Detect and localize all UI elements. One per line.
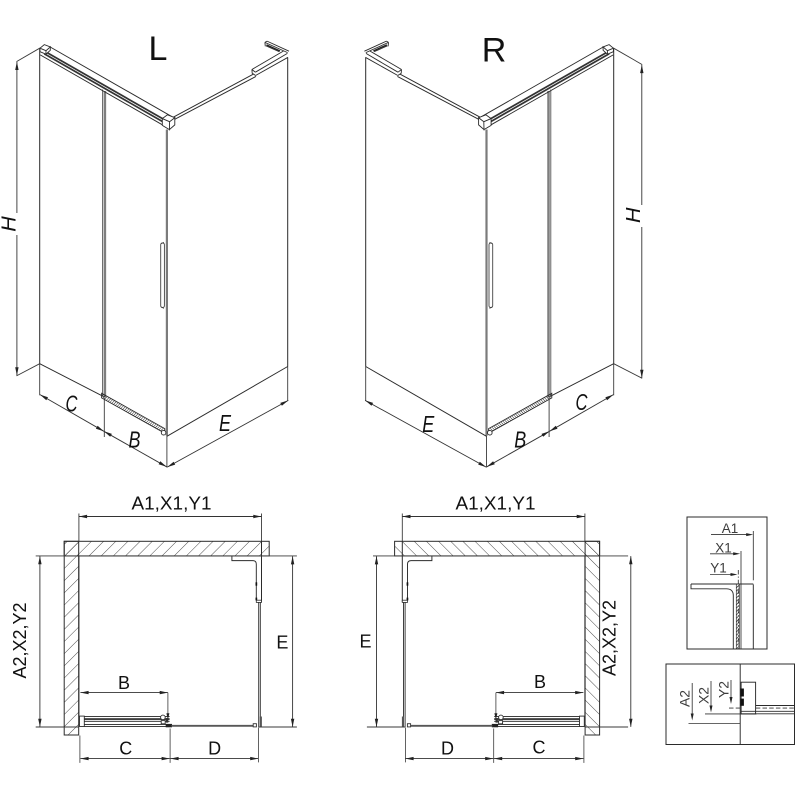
svg-text:B: B [534,672,546,692]
svg-text:A1: A1 [722,520,739,536]
svg-text:C: C [576,389,588,415]
svg-text:E: E [276,633,288,653]
svg-text:C: C [533,738,546,758]
svg-text:C: C [119,739,132,759]
svg-text:X2: X2 [696,687,712,704]
svg-text:C: C [66,391,78,417]
svg-text:A2,X2,Y2: A2,X2,Y2 [10,602,30,678]
svg-text:A2: A2 [677,690,693,707]
svg-text:D: D [208,739,221,759]
svg-text:R: R [482,32,507,70]
svg-text:B: B [118,673,130,693]
svg-text:B: B [129,427,141,453]
svg-text:H: H [0,216,21,232]
svg-text:D: D [441,739,454,759]
svg-text:E: E [422,411,435,437]
svg-text:E: E [359,632,371,652]
svg-text:L: L [149,30,168,68]
svg-text:A1,X1,Y1: A1,X1,Y1 [132,494,212,514]
svg-text:Y2: Y2 [716,681,732,698]
svg-text:X1: X1 [715,540,732,556]
svg-text:A2,X2,Y2: A2,X2,Y2 [600,600,620,676]
svg-text:H: H [623,207,645,223]
svg-text:Y1: Y1 [710,560,727,576]
svg-text:E: E [219,410,232,436]
svg-text:A1,X1,Y1: A1,X1,Y1 [456,494,536,514]
svg-text:B: B [514,427,526,453]
